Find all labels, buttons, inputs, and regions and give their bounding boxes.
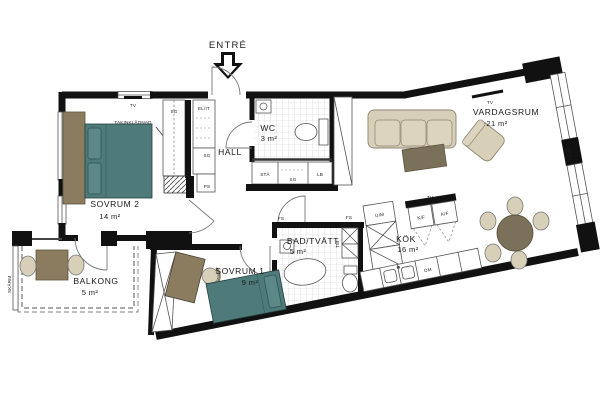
interior-wall <box>246 184 338 191</box>
interior-wall <box>185 100 191 178</box>
interior-wall <box>150 244 242 250</box>
room-area-balkong: 5 m² <box>82 288 99 297</box>
dining-table <box>497 215 533 251</box>
room-area-wc: 3 m² <box>261 134 278 143</box>
balcony-pier <box>12 231 32 246</box>
wall-pier <box>576 222 600 253</box>
lb-label: LB <box>317 172 323 177</box>
tv-wall-mount <box>124 96 142 99</box>
room-area-kok: 16 m² <box>397 245 418 254</box>
right-window-wall <box>548 72 599 252</box>
toilet <box>343 274 358 292</box>
bed-headboard <box>63 112 85 204</box>
fs-label: FS <box>346 215 352 220</box>
toilet-tank <box>344 266 357 274</box>
sofa <box>368 110 456 148</box>
room-label-balkong: BALKONG <box>73 276 118 286</box>
elit-label: EL/IT <box>198 106 210 111</box>
sovrum2-door <box>189 200 214 233</box>
screen-label: SKÄRM <box>6 276 12 293</box>
sofa-cushion <box>375 120 400 146</box>
balcony-screen <box>13 246 18 310</box>
wc-sink <box>256 100 271 113</box>
room-label-vardagsrum: VARDAGSRUM <box>473 107 539 117</box>
tv-wall-mount <box>472 91 503 97</box>
floor-plan: ENTRÉ BR 90 SKÄRM BA <box>0 0 600 400</box>
entry-label: ENTRÉ <box>209 40 247 51</box>
shaft-hatched <box>164 176 188 193</box>
sink-bowl <box>383 269 397 283</box>
tv-label: TV <box>130 103 137 108</box>
balcony-pier <box>101 231 117 246</box>
dining-chair <box>485 244 501 262</box>
sofa-cushion <box>401 120 426 146</box>
balcony-chair <box>20 256 36 276</box>
toilet-tank <box>319 119 328 145</box>
dining-chair <box>507 197 523 215</box>
room-label-bad: BAD/TVÄTT <box>287 236 339 246</box>
floor-plan-canvas: ENTRÉ BR 90 SKÄRM BA <box>0 0 600 400</box>
room-area-sovrum1: 9 m² <box>242 278 259 287</box>
balcony-chair <box>68 255 84 275</box>
toilet <box>295 124 317 141</box>
sg-label: SG <box>170 109 177 114</box>
room-area-vardagsrum: 21 m² <box>486 119 507 128</box>
room-label-hall: HALL <box>218 147 242 157</box>
ceiling-cladding-label: TAKINKLÄDNAD <box>114 119 152 125</box>
tv-label: TV <box>427 195 434 200</box>
sg-label: SG <box>203 153 210 158</box>
room-area-sovrum2: 14 m² <box>99 212 120 221</box>
room-label-sovrum1: SOVRUM 1 <box>215 266 264 276</box>
interior-wall <box>272 222 364 228</box>
room-label-sovrum2: SOVRUM 2 <box>90 199 139 209</box>
ps-label: PS <box>204 184 211 189</box>
room-label-wc: WC <box>260 123 275 133</box>
interior-wall <box>272 222 277 238</box>
wc-door <box>226 122 252 148</box>
pillow <box>88 128 101 159</box>
cabinet-sg <box>193 148 215 174</box>
balcony-table <box>36 250 68 280</box>
sg-label: SG <box>289 177 296 182</box>
sofa-cushion <box>427 120 452 146</box>
room-area-bad: 5 m² <box>290 247 307 256</box>
dining-chair <box>511 251 527 269</box>
dining-chair <box>533 212 549 230</box>
tv-label: TV <box>487 100 494 105</box>
sta-label: STÄ <box>260 171 270 177</box>
interior-wall <box>186 176 194 198</box>
pillow <box>88 163 101 194</box>
cabinet-ps <box>197 174 215 192</box>
dining-chair <box>480 212 496 230</box>
sink-bowl <box>401 265 415 279</box>
fs-label: FS <box>278 216 284 221</box>
room-label-kok: KÖK <box>396 234 416 244</box>
